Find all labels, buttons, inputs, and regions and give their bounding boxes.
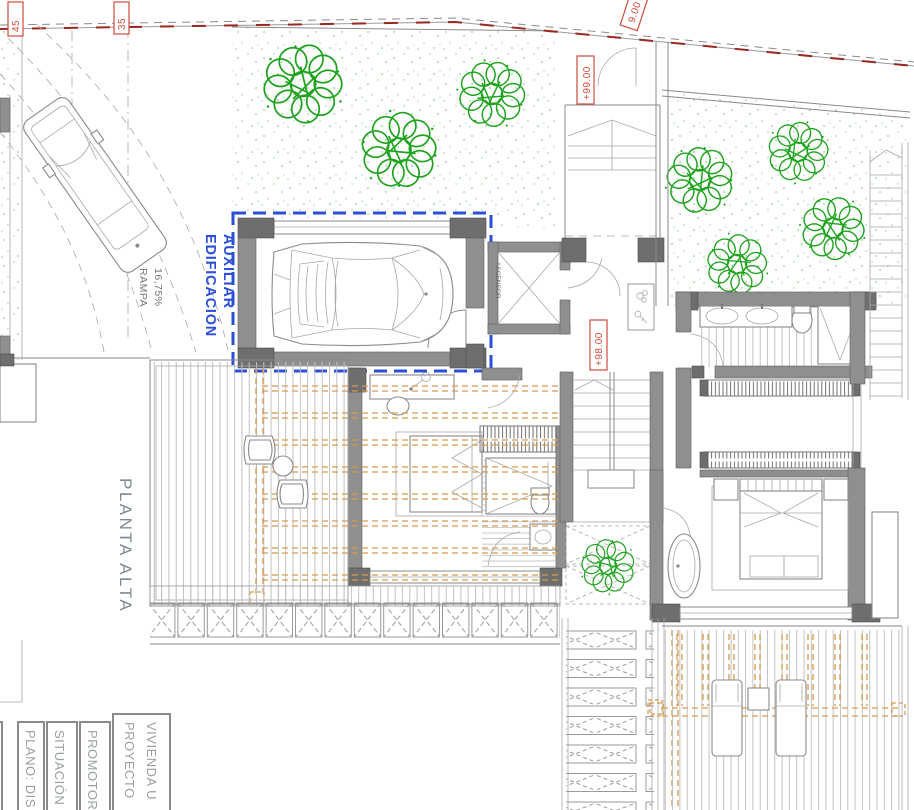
- garden-divider-wall: [656, 42, 668, 306]
- ramp-label-line1: RAMPA: [137, 268, 149, 307]
- floor-plan-canvas: 45 35 9.00 +99.00 RAMPA 16,75%: [0, 0, 914, 810]
- title-situacion: SITUACIÓN: [52, 730, 67, 805]
- boundary-mark-35-label: 35: [117, 18, 128, 30]
- level-mark-99: +99.00: [577, 56, 594, 104]
- floor-plan-drawing: 45 35 9.00 +99.00 RAMPA 16,75%: [0, 0, 914, 810]
- level-99-label: +99.00: [582, 66, 593, 100]
- boundary-mark-35: 35: [114, 2, 129, 34]
- title-proyecto-line1: PROYECTO: [122, 722, 137, 799]
- wall-return-left: [0, 364, 36, 422]
- title-block: PLANO: DIS SITUACIÓN PROMOTOR PROYECTO V…: [0, 714, 170, 810]
- aux-building-label-line2: AUXILIAR: [220, 234, 236, 309]
- floor-title: PLANTA ALTA: [116, 478, 135, 613]
- lounger-table: [748, 688, 769, 710]
- boundary-dim-9: 9.00: [620, 0, 650, 31]
- van-top-view: [15, 91, 175, 280]
- level-mark-98: +98.00: [590, 320, 607, 370]
- site-lines-bottom-left: [0, 640, 22, 702]
- garden-upper-left: [232, 27, 558, 228]
- garden-upper-right: [662, 90, 910, 306]
- terrace-right: [650, 626, 908, 810]
- wardrobe-middle: [480, 426, 560, 452]
- garage: [238, 218, 486, 368]
- sports-car-top-view: [272, 242, 453, 345]
- boundary-mark-45-label: 45: [11, 20, 22, 32]
- elevator: ASCENSOR: [488, 242, 570, 334]
- cross-braced-band: [150, 602, 560, 648]
- armchair-1: [244, 436, 275, 464]
- title-proyecto-line2: VIVIENDA U: [144, 722, 159, 800]
- elevator-label: ASCENSOR: [494, 262, 501, 299]
- louver-strip: [562, 618, 678, 810]
- armchair-2: [277, 480, 308, 508]
- ramp-label-line2: 16,75%: [152, 268, 164, 307]
- boundary-mark-45: 45: [8, 2, 23, 36]
- side-table: [273, 456, 293, 476]
- fixture-symbols: [628, 284, 654, 330]
- wall-stub-left-1: [0, 98, 10, 132]
- wall-pier-left: [0, 354, 14, 366]
- aux-building-label-line1: EDIFICACIÓN: [202, 234, 220, 337]
- title-block-box-proyecto: [113, 714, 170, 810]
- main-staircase: [560, 372, 663, 522]
- courtyard-lightwell: [566, 526, 650, 604]
- level-98-label: +98.00: [594, 332, 605, 366]
- title-promotor: PROMOTOR: [85, 730, 100, 810]
- walkin-closet: [700, 380, 860, 477]
- title-plano: PLANO: DIS: [23, 730, 38, 808]
- ramp-area: RAMPA 16,75%: [0, 24, 228, 358]
